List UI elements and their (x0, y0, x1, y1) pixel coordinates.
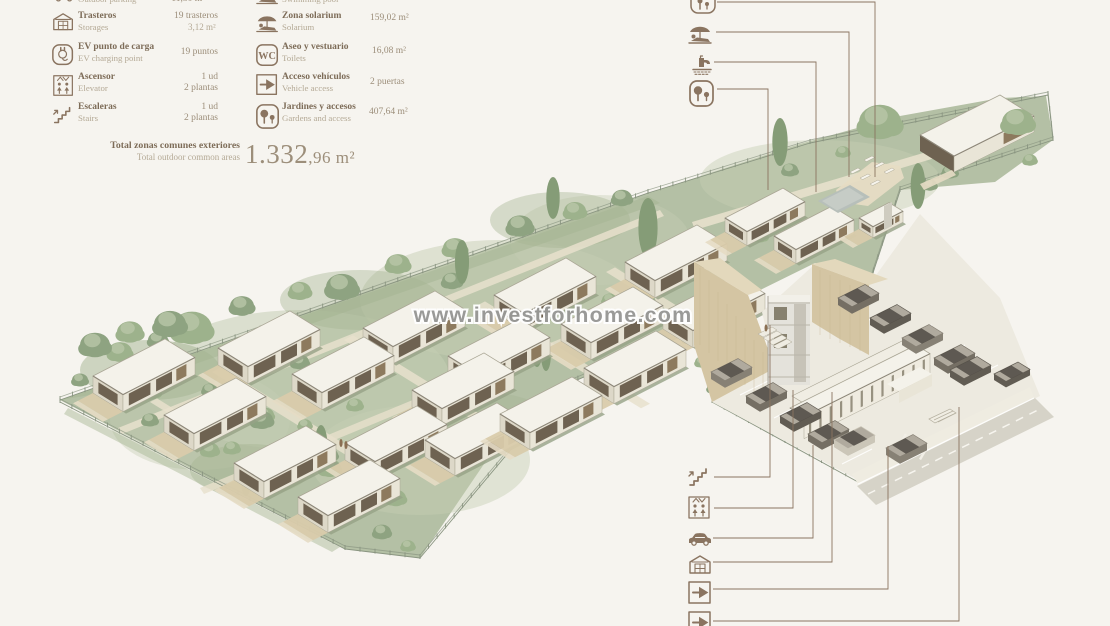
svg-text:www.investforhome.com: www.investforhome.com (413, 303, 693, 327)
svg-text:WC: WC (258, 51, 276, 62)
